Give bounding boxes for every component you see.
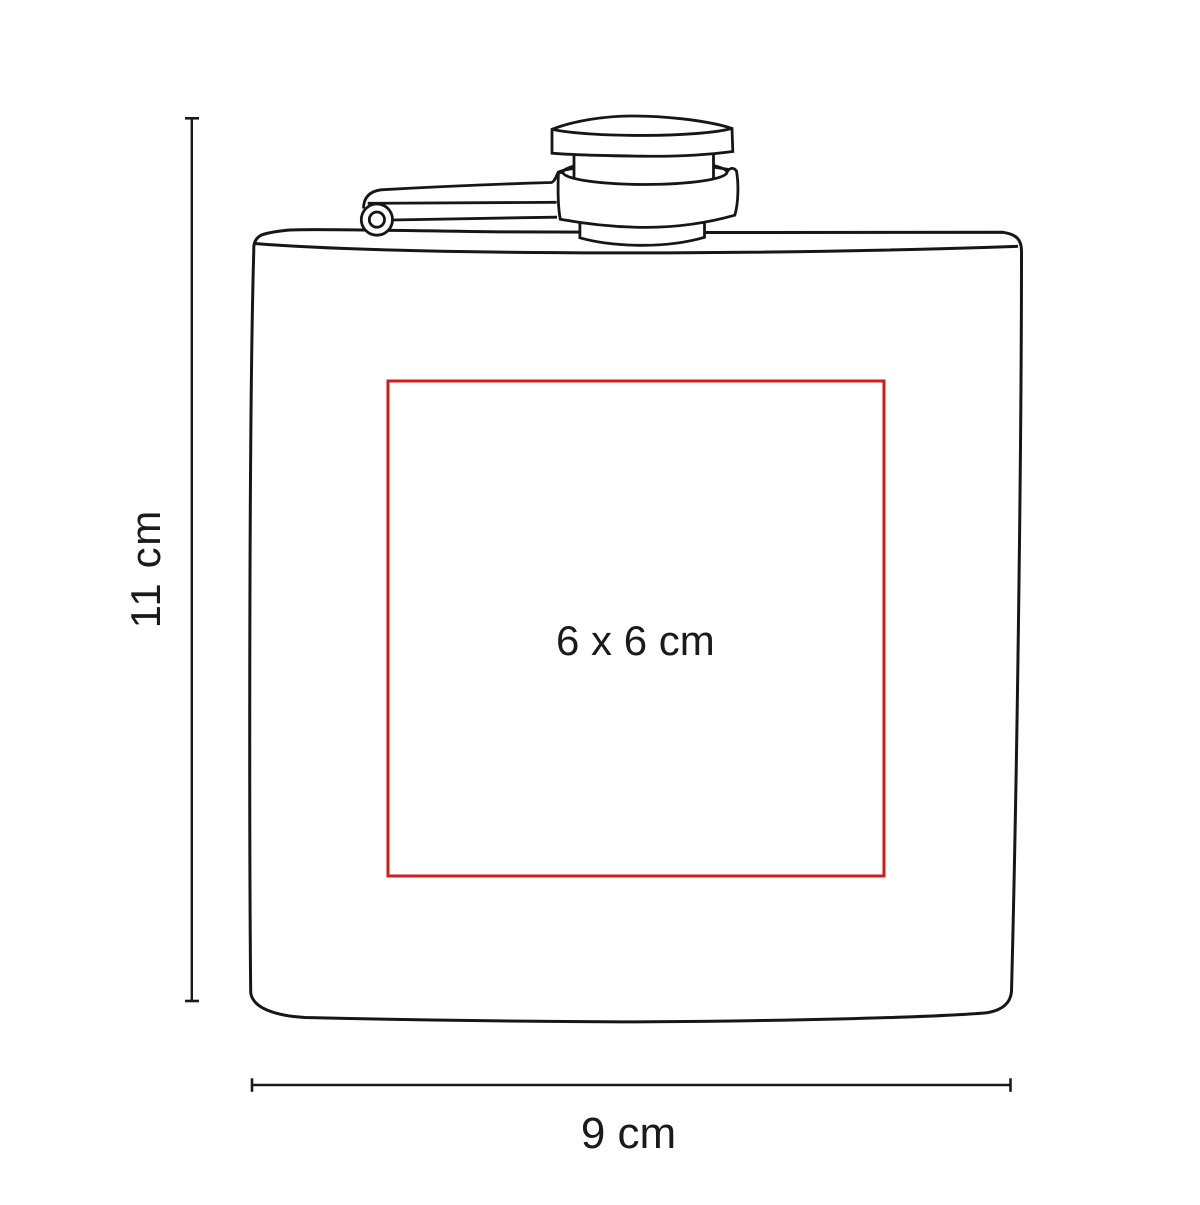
svg-text:9 cm: 9 cm: [581, 1109, 676, 1158]
svg-text:11 cm: 11 cm: [122, 509, 169, 628]
svg-text:6 x 6 cm: 6 x 6 cm: [556, 617, 715, 664]
